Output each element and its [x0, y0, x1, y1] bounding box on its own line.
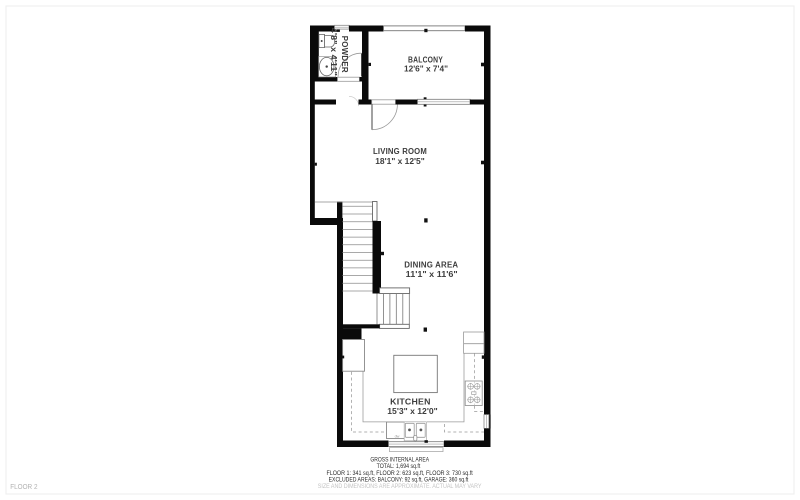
svg-text:4'8" x 4'11": 4'8" x 4'11" — [329, 28, 338, 76]
svg-text:BALCONY: BALCONY — [408, 56, 444, 65]
svg-text:dw: dw — [395, 434, 400, 438]
svg-text:12'6" x 7'4": 12'6" x 7'4" — [404, 65, 448, 74]
svg-text:DINING AREA: DINING AREA — [404, 261, 458, 270]
svg-text:SIZE AND DIMENSIONS ARE APPROX: SIZE AND DIMENSIONS ARE APPROXIMATE. ACT… — [318, 483, 482, 490]
svg-text:LIVING ROOM: LIVING ROOM — [373, 147, 427, 156]
svg-text:11'1" x 11'6": 11'1" x 11'6" — [406, 270, 458, 279]
svg-text:15'3" x 12'0": 15'3" x 12'0" — [387, 407, 438, 416]
svg-text:KITCHEN: KITCHEN — [390, 397, 431, 406]
svg-text:FLOOR 2: FLOOR 2 — [10, 484, 37, 491]
svg-text:18'1" x 12'5": 18'1" x 12'5" — [375, 157, 425, 166]
svg-text:POWDER: POWDER — [340, 36, 349, 73]
